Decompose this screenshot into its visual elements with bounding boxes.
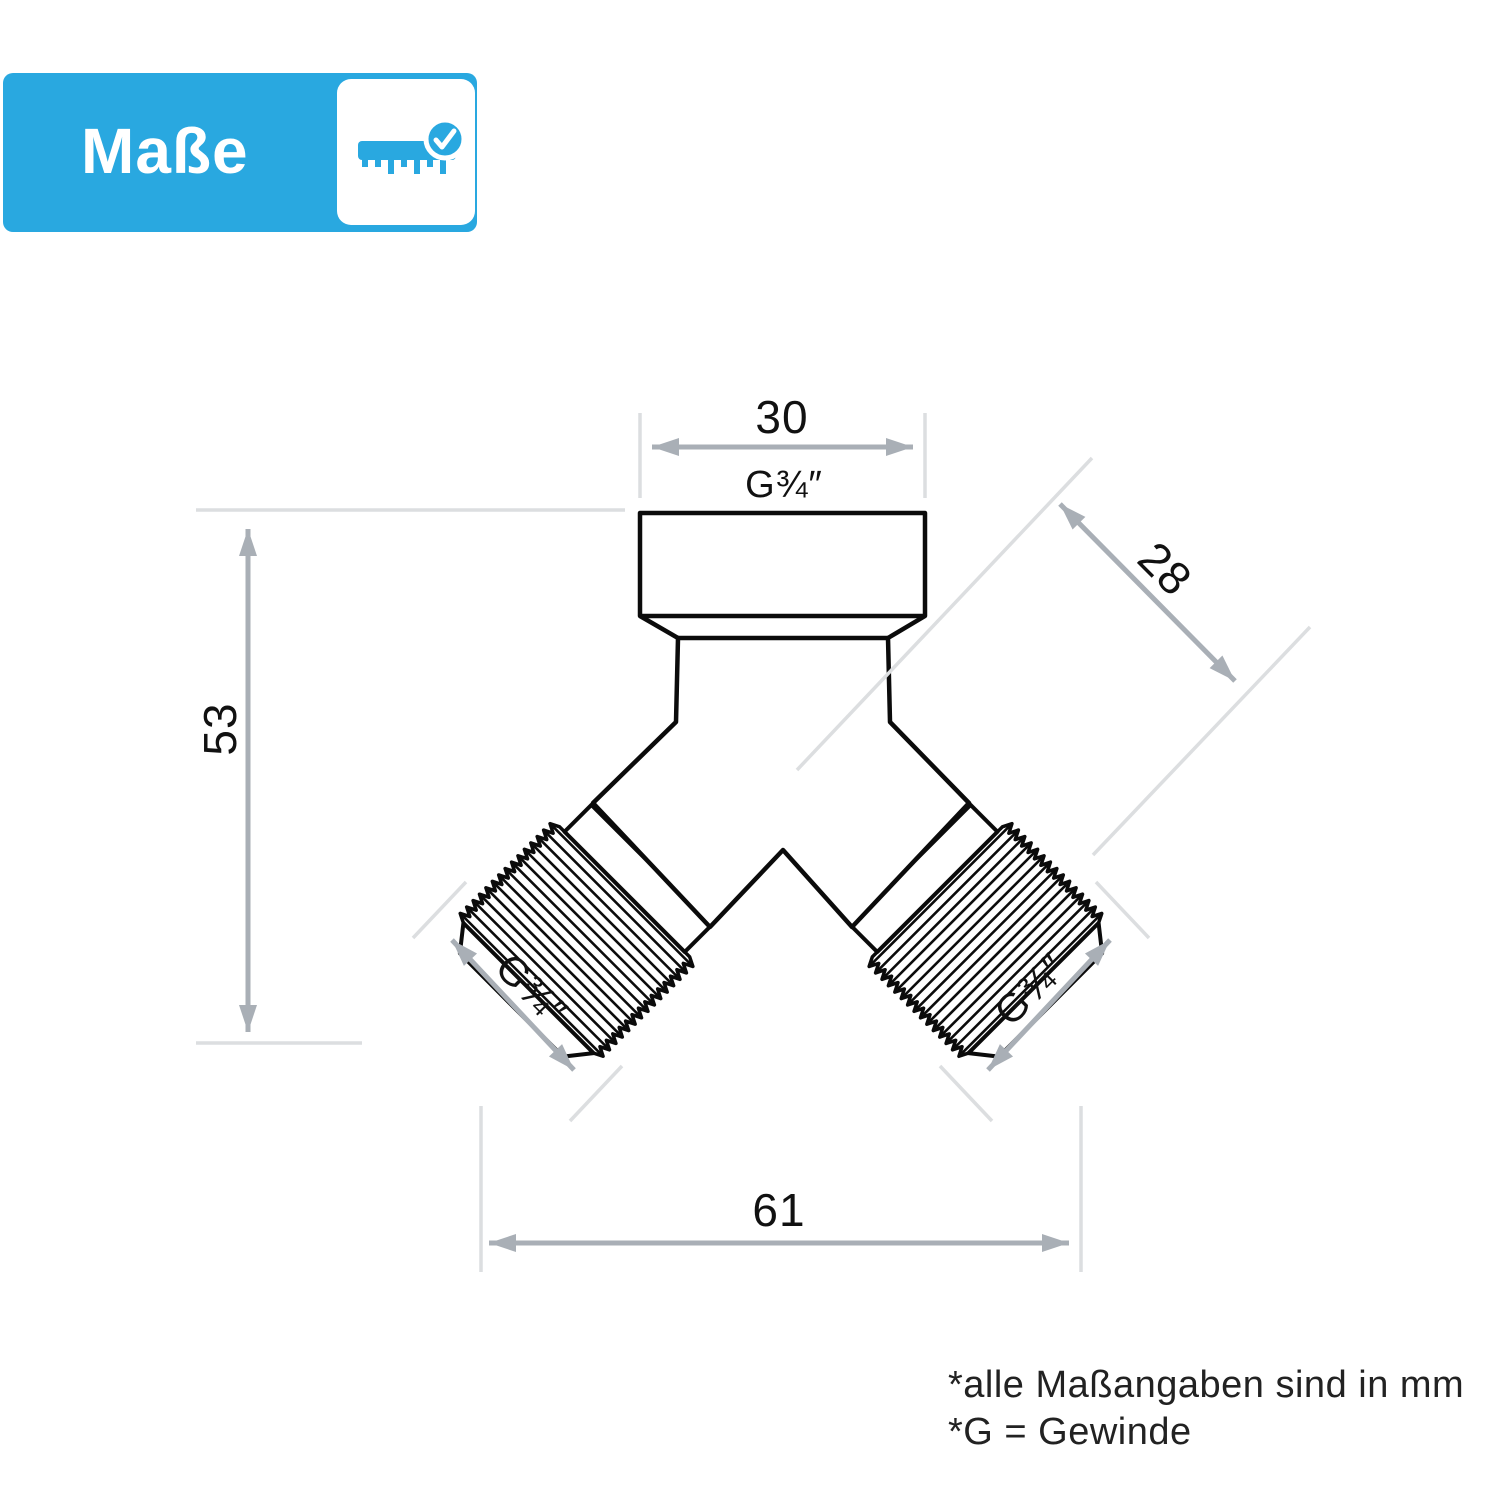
dim-label-53: 53 xyxy=(194,702,246,755)
dimension-diagram: 30 G¾″ 28 53 61 G¾″ G¾″ xyxy=(0,0,1500,1500)
dim-label-61: 61 xyxy=(752,1184,805,1236)
dim-label-top-thread: G¾″ xyxy=(745,464,823,506)
footnote-units: *alle Maßangaben sind in mm xyxy=(948,1362,1464,1409)
page: Maße xyxy=(0,0,1500,1500)
dim-arrow-28 xyxy=(1060,504,1235,681)
dim-label-30: 30 xyxy=(755,391,808,443)
footnotes: *alle Maßangaben sind in mm *G = Gewinde xyxy=(948,1362,1464,1456)
footnote-thread: *G = Gewinde xyxy=(948,1409,1464,1456)
fitting-body-outline xyxy=(593,513,969,927)
dim-label-28: 28 xyxy=(1128,532,1202,606)
